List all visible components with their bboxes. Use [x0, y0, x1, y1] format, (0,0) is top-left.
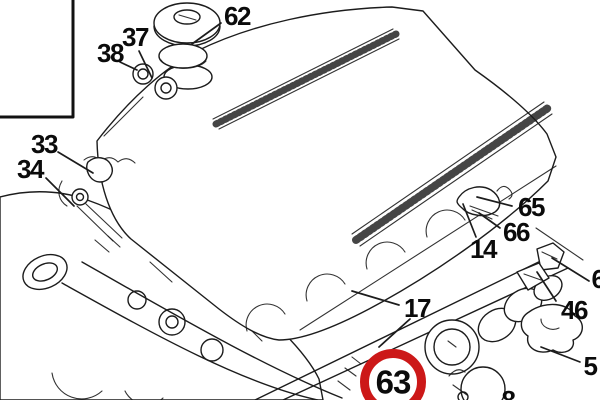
callout-65-leader	[477, 197, 512, 206]
callout-46-leader	[537, 272, 556, 301]
callout-17-leader	[352, 291, 399, 305]
callout-46: 46	[561, 295, 588, 325]
callout-17: 17	[404, 293, 431, 323]
callout-6-leader	[552, 258, 589, 281]
callout-5: 5	[584, 351, 598, 381]
callout-66: 66	[503, 217, 530, 247]
callout-6: 6	[592, 264, 600, 294]
callout-62: 62	[224, 1, 251, 31]
callout-37-leader	[139, 51, 152, 78]
parts-diagram: 6237383334656614176465863	[0, 0, 600, 400]
callout-34-leader	[46, 178, 74, 206]
callout-62-leader	[192, 23, 221, 44]
callout-14-leader	[463, 204, 476, 237]
callout-34: 34	[17, 154, 45, 184]
callout-33-leader	[58, 152, 93, 173]
highlight-callout-63: 63	[376, 364, 411, 400]
callout-17-leader-2	[379, 319, 410, 347]
callout-37: 37	[122, 22, 149, 52]
callout-14: 14	[470, 234, 498, 264]
callout-66-leader	[479, 213, 500, 228]
callout-38: 38	[97, 38, 124, 68]
callout-5-leader	[541, 347, 580, 362]
callout-8: 8	[502, 385, 516, 400]
callout-layer: 6237383334656614176465863	[0, 0, 600, 400]
